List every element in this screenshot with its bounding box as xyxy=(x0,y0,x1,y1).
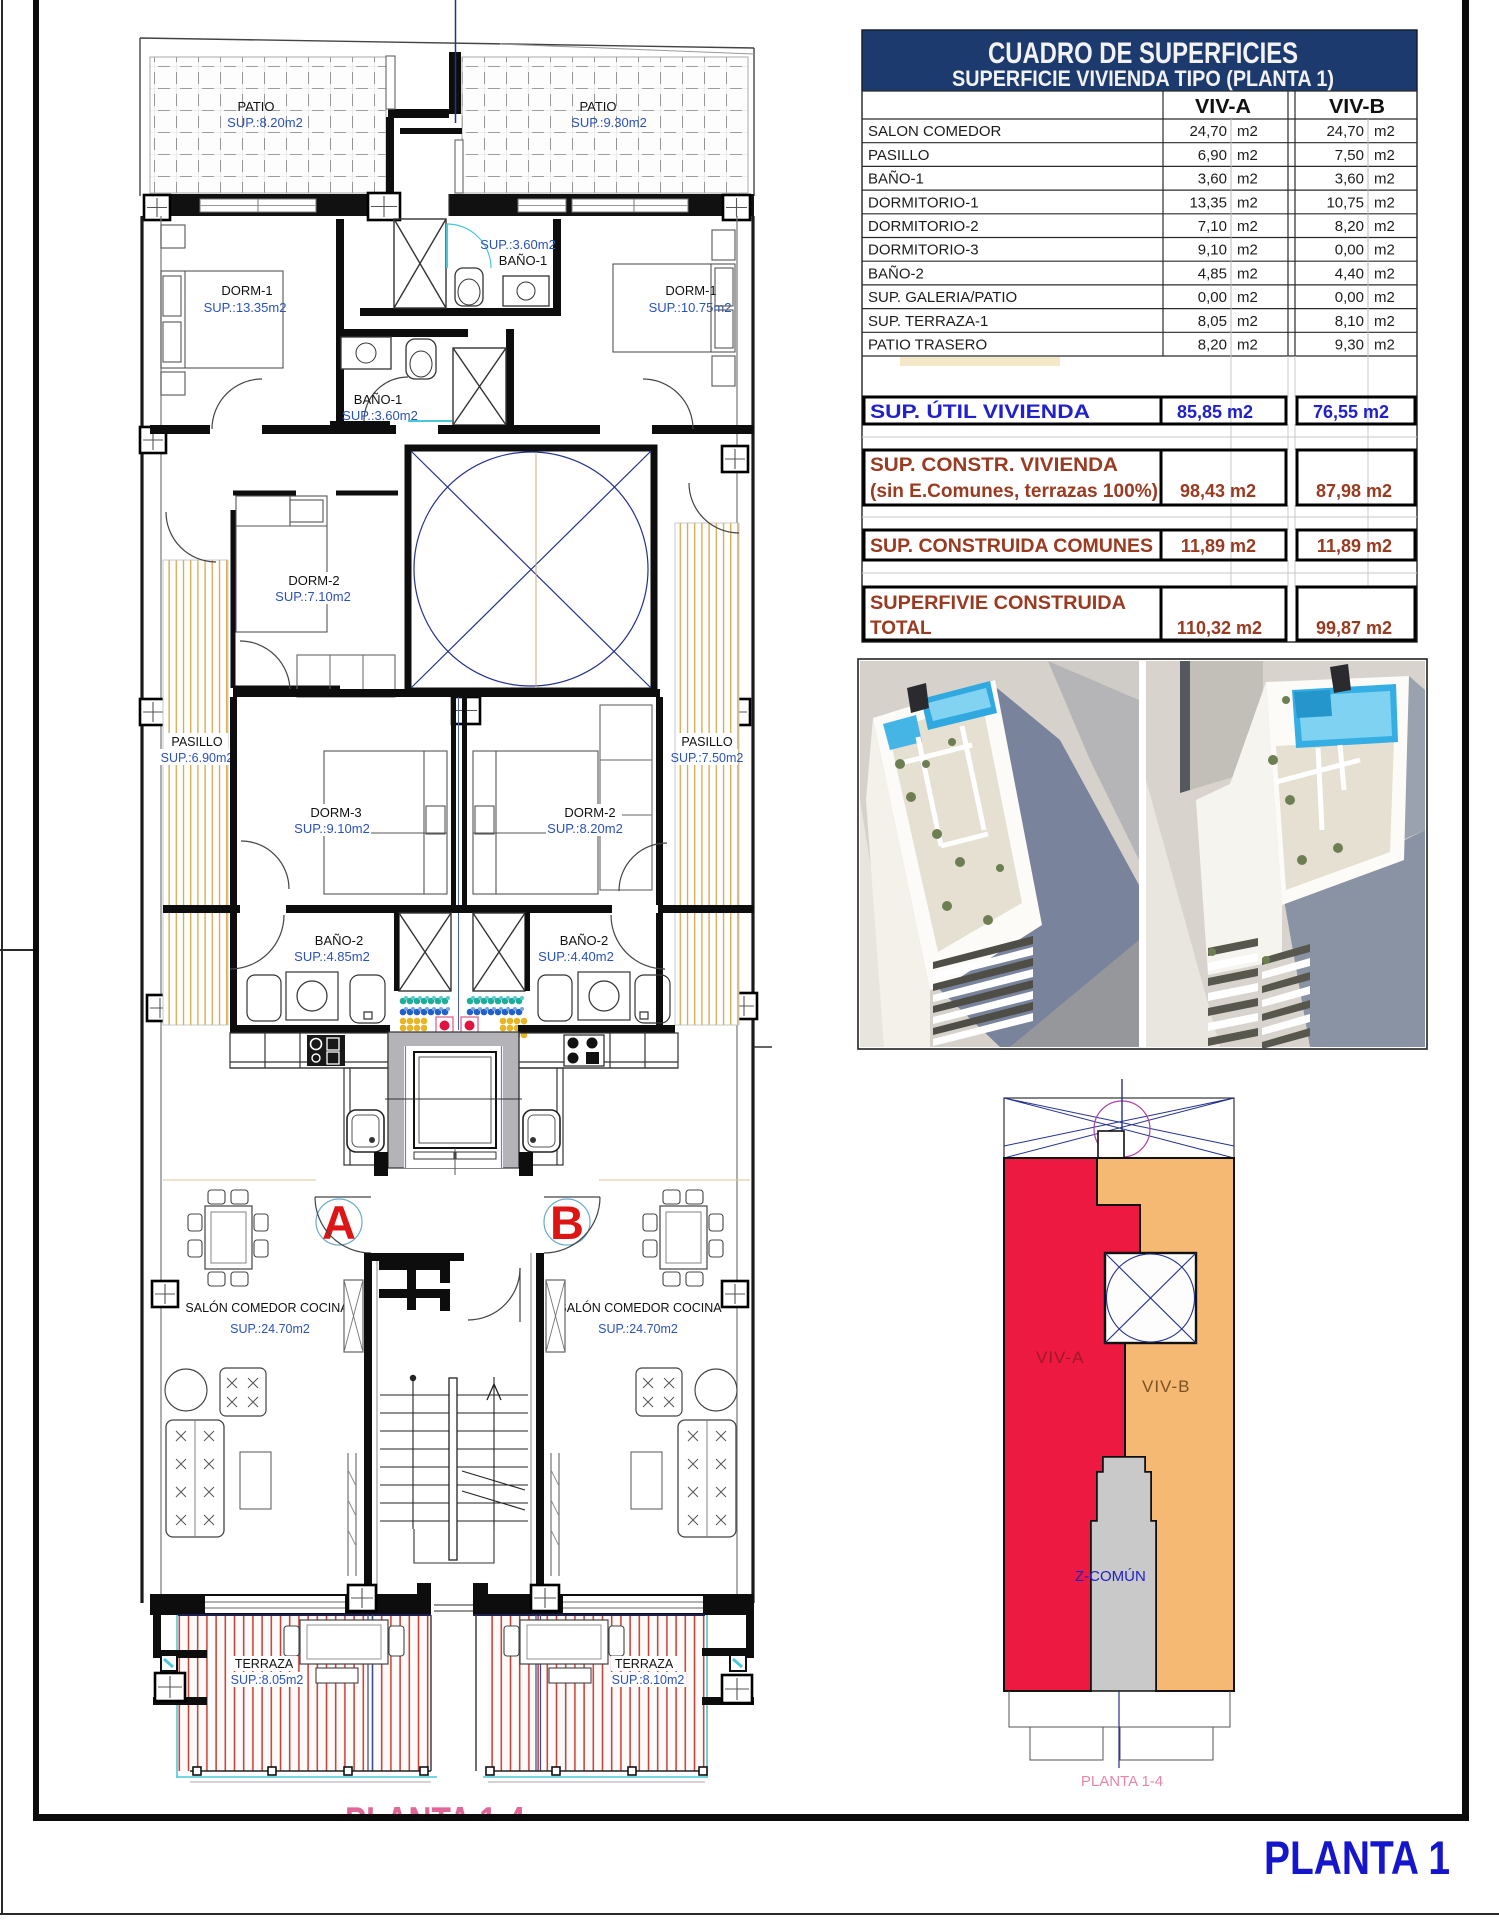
svg-text:(sin E.Comunes, terrazas 100%): (sin E.Comunes, terrazas 100%) xyxy=(870,481,1158,502)
svg-text:VIV-B: VIV-B xyxy=(1329,96,1385,118)
svg-text:m2: m2 xyxy=(1374,337,1395,354)
svg-text:m2: m2 xyxy=(1237,337,1258,354)
svg-text:TERRAZA: TERRAZA xyxy=(235,1657,294,1671)
svg-text:8,20: 8,20 xyxy=(1335,218,1364,235)
svg-text:SUP.:8.20m2: SUP.:8.20m2 xyxy=(547,821,623,836)
svg-text:m2: m2 xyxy=(1237,265,1258,282)
svg-text:SUP.:3.60m2: SUP.:3.60m2 xyxy=(342,408,418,423)
svg-text:SUP.:7.50m2: SUP.:7.50m2 xyxy=(671,751,744,765)
svg-text:DORM-1: DORM-1 xyxy=(221,283,272,298)
svg-text:VIV-B: VIV-B xyxy=(1142,1377,1190,1396)
svg-text:SUP.:8.20m2: SUP.:8.20m2 xyxy=(227,115,303,130)
svg-text:SUP. TERRAZA-1: SUP. TERRAZA-1 xyxy=(868,313,988,330)
svg-text:m2: m2 xyxy=(1237,147,1258,164)
svg-text:SUP.:7.10m2: SUP.:7.10m2 xyxy=(275,589,351,604)
svg-text:24,70: 24,70 xyxy=(1326,123,1364,140)
svg-text:DORM-2: DORM-2 xyxy=(564,805,615,820)
svg-text:8,05: 8,05 xyxy=(1198,313,1227,330)
svg-text:m2: m2 xyxy=(1237,123,1258,140)
svg-text:BAÑO-1: BAÑO-1 xyxy=(354,392,402,407)
svg-text:SUP. ÚTIL VIVIENDA: SUP. ÚTIL VIVIENDA xyxy=(870,401,1090,423)
svg-text:0,00: 0,00 xyxy=(1335,289,1364,306)
svg-text:VIV-A: VIV-A xyxy=(1036,1348,1084,1367)
svg-text:PASILLO: PASILLO xyxy=(681,735,732,749)
svg-text:BAÑO-1: BAÑO-1 xyxy=(499,253,547,268)
svg-text:SUPERFICIE VIVIENDA TIPO (PLA: SUPERFICIE VIVIENDA TIPO (PLANTA 1) xyxy=(952,66,1334,91)
svg-text:8,10: 8,10 xyxy=(1335,313,1364,330)
svg-text:0,00: 0,00 xyxy=(1198,289,1227,306)
svg-text:m2: m2 xyxy=(1237,194,1258,211)
svg-text:m2: m2 xyxy=(1374,289,1395,306)
svg-text:3,60: 3,60 xyxy=(1335,171,1364,188)
svg-text:SALÓN COMEDOR COCINA: SALÓN COMEDOR COCINA xyxy=(185,1300,349,1315)
svg-text:4,40: 4,40 xyxy=(1335,265,1364,282)
svg-text:3,60: 3,60 xyxy=(1198,171,1227,188)
svg-text:8,20: 8,20 xyxy=(1198,337,1227,354)
svg-text:PLANTA 1: PLANTA 1 xyxy=(1264,1831,1450,1884)
svg-text:PASILLO: PASILLO xyxy=(868,147,929,164)
svg-text:SALÓN COMEDOR COCINA: SALÓN COMEDOR COCINA xyxy=(558,1300,722,1315)
svg-text:SUP. CONSTR. VIVIENDA: SUP. CONSTR. VIVIENDA xyxy=(870,455,1118,476)
svg-text:DORMITORIO-3: DORMITORIO-3 xyxy=(868,242,979,259)
svg-text:PATIO: PATIO xyxy=(237,99,274,114)
svg-text:SUP.:6.90m2: SUP.:6.90m2 xyxy=(161,751,234,765)
svg-text:85,85 m2: 85,85 m2 xyxy=(1177,402,1253,422)
svg-text:VIV-A: VIV-A xyxy=(1195,96,1251,118)
svg-text:98,43 m2: 98,43 m2 xyxy=(1180,481,1256,501)
svg-text:SUP.:13.35m2: SUP.:13.35m2 xyxy=(204,300,287,315)
svg-text:BAÑO-2: BAÑO-2 xyxy=(868,265,924,282)
svg-text:m2: m2 xyxy=(1237,218,1258,235)
svg-text:DORM-3: DORM-3 xyxy=(310,805,361,820)
svg-text:SUP.:4.40m2: SUP.:4.40m2 xyxy=(538,949,614,964)
svg-text:SUP.:8.05m2: SUP.:8.05m2 xyxy=(231,1673,304,1687)
svg-text:11,89 m2: 11,89 m2 xyxy=(1181,536,1256,556)
svg-text:DORM-1: DORM-1 xyxy=(665,283,716,298)
svg-text:DORMITORIO-2: DORMITORIO-2 xyxy=(868,218,979,235)
svg-text:24,70: 24,70 xyxy=(1189,123,1227,140)
svg-text:m2: m2 xyxy=(1237,171,1258,188)
svg-text:m2: m2 xyxy=(1374,242,1395,259)
svg-text:BAÑO-2: BAÑO-2 xyxy=(560,933,608,948)
svg-text:BAÑO-2: BAÑO-2 xyxy=(315,933,363,948)
svg-text:m2: m2 xyxy=(1374,123,1395,140)
svg-text:DORMITORIO-1: DORMITORIO-1 xyxy=(868,194,979,211)
svg-text:13,35: 13,35 xyxy=(1189,194,1227,211)
svg-text:9,10: 9,10 xyxy=(1198,242,1227,259)
svg-text:76,55 m2: 76,55 m2 xyxy=(1313,402,1389,422)
svg-text:SUP. GALERIA/PATIO: SUP. GALERIA/PATIO xyxy=(868,289,1017,306)
svg-text:PLANTA 1-4: PLANTA 1-4 xyxy=(1081,1773,1163,1790)
svg-text:0,00: 0,00 xyxy=(1335,242,1364,259)
svg-text:m2: m2 xyxy=(1374,194,1395,211)
svg-text:m2: m2 xyxy=(1374,147,1395,164)
svg-text:7,10: 7,10 xyxy=(1198,218,1227,235)
svg-text:4,85: 4,85 xyxy=(1198,265,1227,282)
svg-text:SUP.:8.10m2: SUP.:8.10m2 xyxy=(612,1673,685,1687)
svg-text:BAÑO-1: BAÑO-1 xyxy=(868,171,924,188)
svg-text:110,32 m2: 110,32 m2 xyxy=(1177,618,1262,638)
svg-text:7,50: 7,50 xyxy=(1335,147,1364,164)
svg-text:6,90: 6,90 xyxy=(1198,147,1227,164)
svg-text:Z-COMÚN: Z-COMÚN xyxy=(1075,1568,1146,1585)
svg-text:10,75: 10,75 xyxy=(1326,194,1364,211)
svg-text:SALON COMEDOR: SALON COMEDOR xyxy=(868,123,1002,140)
svg-text:DORM-2: DORM-2 xyxy=(288,573,339,588)
svg-text:SUP.:9.30m2: SUP.:9.30m2 xyxy=(571,115,647,130)
svg-text:11,89 m2: 11,89 m2 xyxy=(1317,536,1392,556)
svg-text:SUP.:10.75m2: SUP.:10.75m2 xyxy=(649,300,732,315)
svg-text:SUP.:9.10m2: SUP.:9.10m2 xyxy=(294,821,370,836)
svg-text:PATIO: PATIO xyxy=(579,99,616,114)
svg-text:87,98 m2: 87,98 m2 xyxy=(1316,481,1392,501)
svg-text:9,30: 9,30 xyxy=(1335,337,1364,354)
svg-text:A: A xyxy=(322,1196,356,1249)
svg-text:m2: m2 xyxy=(1374,218,1395,235)
svg-text:SUP.:24.70m2: SUP.:24.70m2 xyxy=(230,1322,310,1336)
svg-text:SUP.:3.60m2: SUP.:3.60m2 xyxy=(480,237,556,252)
svg-text:PASILLO: PASILLO xyxy=(171,735,222,749)
svg-text:m2: m2 xyxy=(1237,313,1258,330)
svg-text:99,87 m2: 99,87 m2 xyxy=(1316,618,1392,638)
svg-text:SUP.:24.70m2: SUP.:24.70m2 xyxy=(598,1322,678,1336)
svg-text:m2: m2 xyxy=(1237,242,1258,259)
svg-text:m2: m2 xyxy=(1237,289,1258,306)
svg-text:SUP.:4.85m2: SUP.:4.85m2 xyxy=(294,949,370,964)
svg-text:m2: m2 xyxy=(1374,313,1395,330)
svg-text:TOTAL: TOTAL xyxy=(870,618,932,639)
svg-text:PATIO TRASERO: PATIO TRASERO xyxy=(868,337,987,354)
svg-text:SUPERFIVIE CONSTRUIDA: SUPERFIVIE CONSTRUIDA xyxy=(870,593,1126,614)
svg-text:m2: m2 xyxy=(1374,265,1395,282)
svg-text:m2: m2 xyxy=(1374,171,1395,188)
svg-text:SUP. CONSTRUIDA COMUNES: SUP. CONSTRUIDA COMUNES xyxy=(870,536,1153,557)
svg-text:TERRAZA: TERRAZA xyxy=(615,1657,674,1671)
